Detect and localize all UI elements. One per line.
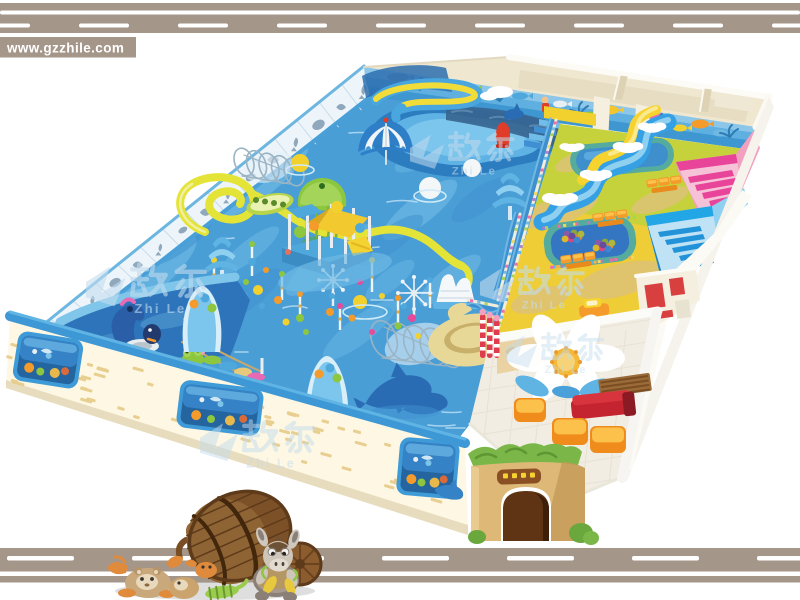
svg-text:Zhi Le: Zhi Le xyxy=(452,166,497,178)
svg-text:Zhi Le: Zhi Le xyxy=(545,364,588,376)
svg-text:Zhi Le: Zhi Le xyxy=(522,300,567,312)
svg-text:Zhi Le: Zhi Le xyxy=(134,301,186,316)
svg-text:www.gzzhile.com: www.gzzhile.com xyxy=(6,41,124,56)
svg-text:Zhi Le: Zhi Le xyxy=(246,456,296,470)
